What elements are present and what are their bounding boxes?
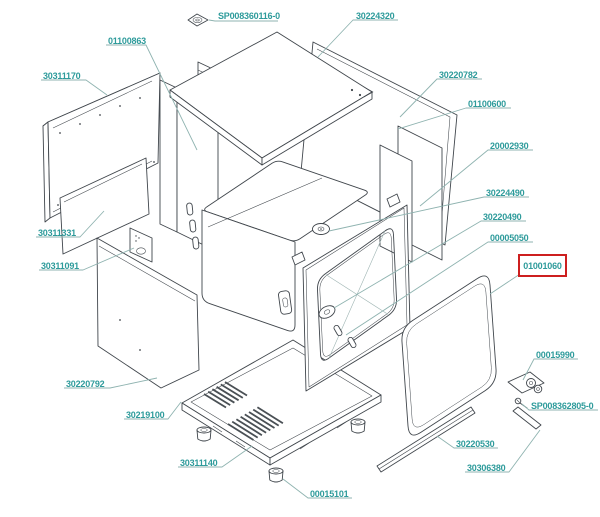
- part-label-30311091: 30311091: [41, 261, 79, 271]
- part-label-30224320: 30224320: [356, 11, 394, 21]
- clamp-fastener: [188, 14, 208, 26]
- part-label-30220530: 30220530: [456, 439, 494, 449]
- part-label-01100600: 01100600: [468, 99, 506, 109]
- part-label-30306380: 30306380: [467, 463, 505, 473]
- part-label-01100863: 01100863: [108, 36, 146, 46]
- part-label-30219100: 30219100: [126, 410, 164, 420]
- part-label-30311140: 30311140: [180, 458, 217, 468]
- part-label-30224490: 30224490: [486, 188, 524, 198]
- part-label-00015990: 00015990: [536, 350, 574, 360]
- adjustable-foot: [269, 468, 283, 482]
- latch-bracket: [130, 228, 152, 262]
- part-label-30311170: 30311170: [43, 71, 80, 81]
- part-label-30220792: 30220792: [66, 379, 104, 389]
- exploded-parts-diagram: SP008360116-0 30224320 01100863 30311170…: [0, 0, 600, 517]
- part-label-00015101: 00015101: [310, 489, 348, 499]
- part-label-30220782: 30220782: [439, 70, 477, 80]
- part-label-30311331: 30311331: [38, 228, 76, 238]
- part-label-01001060: 01001060: [523, 261, 561, 271]
- part-label-20002930: 20002930: [490, 141, 528, 151]
- door-glass-panel: [402, 276, 496, 435]
- adjustable-foot: [197, 427, 211, 441]
- highlighted-part-box: 01001060: [518, 254, 567, 277]
- diagram-line-art: [0, 0, 600, 517]
- part-label-00005050: 00005050: [490, 233, 528, 243]
- part-label-sp008362805-0: SP008362805-0: [531, 401, 593, 411]
- part-label-sp008360116-0: SP008360116-0: [218, 11, 280, 21]
- part-label-30220490: 30220490: [483, 212, 521, 222]
- adjustable-foot: [351, 419, 365, 433]
